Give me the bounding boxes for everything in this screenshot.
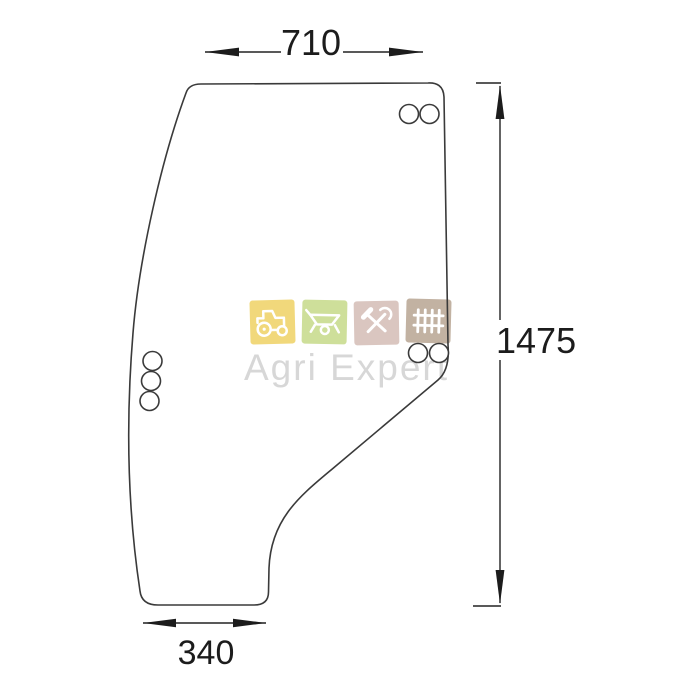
watermark-icon-tile [249,299,295,344]
technical-drawing-canvas: Agri Expert 710 [0,0,700,700]
arrowhead-left-icon [143,619,176,628]
watermark-icon-tile [302,300,348,345]
dimension-bottom-width: 340 [143,619,266,672]
arrowhead-right-icon [233,619,266,628]
arrowhead-right-icon [389,48,423,57]
watermark-icon-tile [354,301,400,346]
glass-drawing [129,83,449,605]
glass-outline [129,83,449,605]
dimension-bottom-width-label: 340 [178,634,235,672]
wheelbarrow-icon-tile [302,300,348,345]
watermark-icon-tile [405,298,451,343]
arrowhead-left-icon [205,48,239,57]
dimension-top-width-label: 710 [281,22,341,63]
bolt-hole [140,392,159,411]
bolt-hole [420,105,439,124]
bolt-hole [430,344,449,363]
bolt-hole [409,344,428,363]
fence-icon-tile [405,298,451,343]
dimension-top-width: 710 [205,22,423,63]
arrowhead-down-icon [496,570,505,604]
bolt-hole [142,372,161,391]
bolt-hole [143,352,162,371]
arrowhead-up-icon [496,85,505,119]
dimension-right-height-label: 1475 [496,320,576,361]
dimension-right-height: 1475 [473,83,576,606]
drawing-svg: Agri Expert 710 [0,0,700,700]
bolt-hole [400,105,419,124]
